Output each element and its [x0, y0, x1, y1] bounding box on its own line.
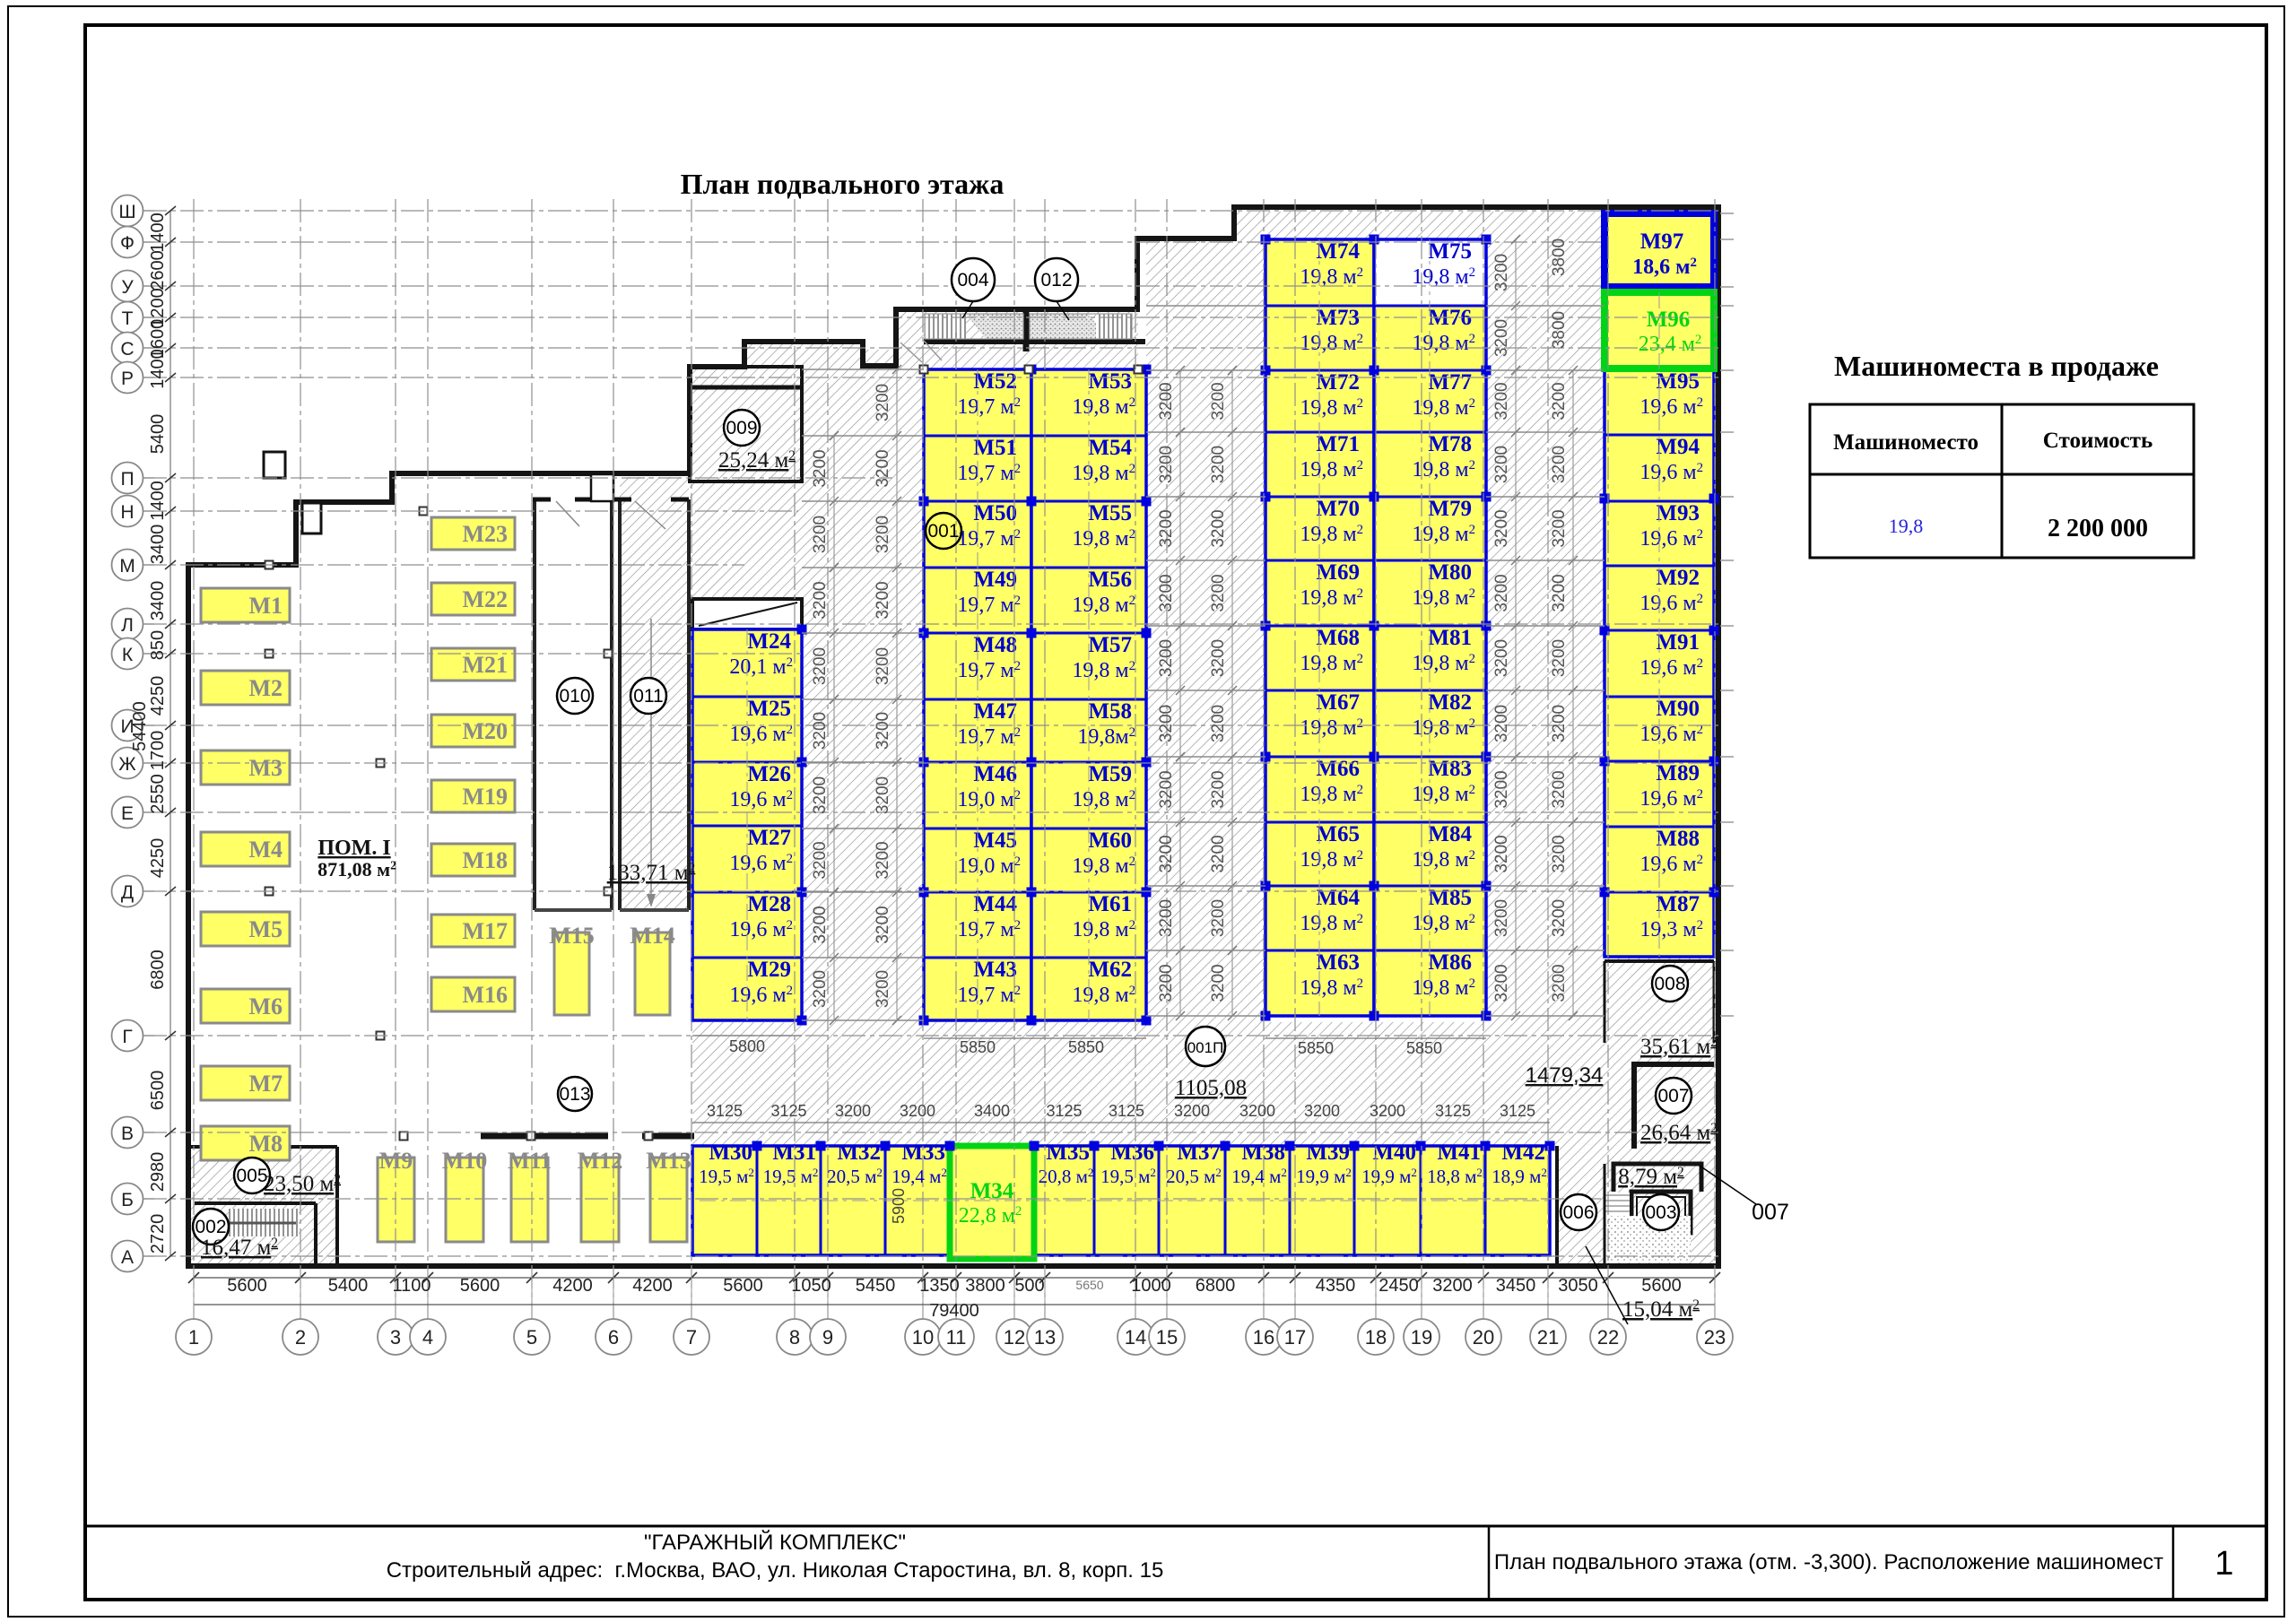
svg-text:19,9 м2: 19,9 м2 [1296, 1166, 1352, 1187]
svg-text:М94: М94 [1656, 435, 1700, 459]
svg-text:1000: 1000 [1131, 1276, 1171, 1296]
svg-text:3200: 3200 [1174, 1102, 1210, 1120]
svg-text:19,8 м2: 19,8 м2 [1072, 854, 1135, 878]
svg-text:3125: 3125 [1500, 1102, 1535, 1120]
svg-text:М64: М64 [1316, 886, 1360, 910]
svg-text:М97: М97 [1640, 230, 1684, 254]
svg-text:М62: М62 [1088, 958, 1132, 982]
svg-text:М48: М48 [973, 633, 1017, 657]
svg-text:М95: М95 [1656, 369, 1700, 394]
svg-text:19,4 м2: 19,4 м2 [1231, 1166, 1287, 1187]
svg-text:М90: М90 [1656, 697, 1700, 721]
svg-text:21: 21 [1537, 1326, 1559, 1349]
svg-text:19,8 м2: 19,8 м2 [1072, 984, 1135, 1007]
svg-text:14: 14 [1125, 1326, 1146, 1349]
svg-text:17: 17 [1284, 1326, 1306, 1349]
svg-text:23,50 м2: 23,50 м2 [264, 1172, 341, 1196]
svg-text:М36: М36 [1110, 1141, 1154, 1165]
svg-text:1050: 1050 [791, 1276, 831, 1296]
svg-text:М8: М8 [248, 1131, 283, 1157]
svg-text:19,0 м2: 19,0 м2 [957, 788, 1021, 811]
svg-text:3: 3 [390, 1326, 401, 1349]
svg-text:М29: М29 [747, 958, 791, 982]
svg-text:7: 7 [686, 1326, 697, 1349]
svg-text:20,5 м2: 20,5 м2 [827, 1166, 883, 1187]
svg-text:2600: 2600 [148, 250, 168, 291]
svg-text:133,71 м2: 133,71 м2 [607, 861, 696, 885]
svg-text:Ш: Ш [118, 202, 135, 222]
svg-text:3200: 3200 [811, 516, 830, 553]
svg-text:Н: Н [120, 502, 134, 523]
svg-text:3800: 3800 [965, 1276, 1005, 1296]
svg-text:5800: 5800 [729, 1037, 765, 1055]
svg-text:16: 16 [1253, 1326, 1274, 1349]
svg-text:3200: 3200 [1492, 964, 1511, 1002]
svg-text:М74: М74 [1316, 239, 1360, 264]
svg-text:М70: М70 [1316, 497, 1360, 521]
svg-text:19,3 м2: 19,3 м2 [1639, 918, 1703, 941]
svg-text:М84: М84 [1428, 822, 1472, 846]
svg-text:М58: М58 [1088, 699, 1132, 724]
svg-text:М25: М25 [747, 697, 791, 721]
svg-text:5850: 5850 [1406, 1039, 1442, 1057]
svg-text:3200: 3200 [874, 647, 892, 685]
svg-text:18,9 м2: 18,9 м2 [1492, 1166, 1547, 1187]
svg-text:19,6 м2: 19,6 м2 [729, 918, 793, 941]
svg-text:3200: 3200 [811, 906, 830, 943]
svg-text:М: М [119, 556, 135, 577]
svg-text:3200: 3200 [1157, 964, 1176, 1002]
svg-text:5600: 5600 [1641, 1276, 1682, 1296]
svg-text:1700: 1700 [148, 731, 168, 771]
svg-text:М87: М87 [1656, 892, 1700, 916]
svg-text:18: 18 [1365, 1326, 1387, 1349]
svg-text:М3: М3 [248, 755, 283, 781]
svg-text:М32: М32 [837, 1141, 881, 1165]
svg-text:М35: М35 [1046, 1141, 1090, 1165]
svg-text:3200: 3200 [1209, 639, 1228, 677]
svg-text:Б: Б [121, 1190, 134, 1210]
svg-text:19,5 м2: 19,5 м2 [699, 1166, 754, 1187]
svg-text:3200: 3200 [874, 516, 892, 553]
svg-text:5600: 5600 [227, 1276, 267, 1296]
svg-text:М50: М50 [973, 501, 1017, 525]
svg-text:3200: 3200 [1492, 835, 1511, 872]
svg-text:6500: 6500 [148, 1071, 168, 1111]
svg-text:М52: М52 [973, 369, 1017, 394]
svg-text:3200: 3200 [1492, 639, 1511, 677]
svg-text:Ф: Ф [120, 233, 135, 254]
svg-text:3200: 3200 [1209, 446, 1228, 483]
svg-text:23,4 м2: 23,4 м2 [1639, 333, 1702, 356]
svg-text:3200: 3200 [874, 776, 892, 814]
svg-text:3200: 3200 [1550, 835, 1569, 872]
svg-text:19: 19 [1411, 1326, 1432, 1349]
svg-text:М7: М7 [248, 1071, 283, 1097]
svg-text:М47: М47 [973, 699, 1017, 724]
svg-text:3200: 3200 [811, 581, 830, 619]
svg-text:5600: 5600 [723, 1276, 763, 1296]
svg-text:М46: М46 [973, 762, 1017, 786]
svg-text:М86: М86 [1428, 950, 1472, 975]
svg-text:2720: 2720 [148, 1214, 168, 1254]
svg-text:19,8 м2: 19,8 м2 [1072, 462, 1135, 485]
svg-text:"ГАРАЖНЫЙ КОМПЛЕКС": "ГАРАЖНЫЙ КОМПЛЕКС" [644, 1530, 906, 1555]
svg-text:23: 23 [1704, 1326, 1726, 1349]
svg-text:3200: 3200 [1492, 254, 1511, 291]
svg-text:3200: 3200 [1550, 446, 1569, 483]
svg-text:8: 8 [789, 1326, 800, 1349]
svg-text:3200: 3200 [1370, 1102, 1405, 1120]
svg-text:19,8 м2: 19,8 м2 [1300, 848, 1363, 872]
svg-text:3200: 3200 [1550, 574, 1569, 612]
svg-text:1: 1 [2214, 1545, 2233, 1583]
svg-text:19,8 м2: 19,8 м2 [1300, 652, 1363, 675]
svg-text:М44: М44 [973, 892, 1017, 916]
svg-text:26,64 м2: 26,64 м2 [1640, 1121, 1718, 1145]
svg-text:19,8 м2: 19,8 м2 [1300, 912, 1363, 935]
svg-text:19,6 м2: 19,6 м2 [729, 852, 793, 875]
svg-text:003: 003 [1645, 1202, 1676, 1223]
svg-text:007: 007 [1657, 1086, 1689, 1106]
svg-text:3200: 3200 [811, 449, 830, 487]
svg-text:3450: 3450 [1496, 1276, 1536, 1296]
svg-text:19,8 м2: 19,8 м2 [1072, 395, 1135, 419]
svg-text:4200: 4200 [632, 1276, 673, 1296]
svg-text:М4: М4 [248, 837, 283, 863]
svg-text:Машиноместо: Машиноместо [1833, 430, 1979, 455]
svg-text:19,6 м2: 19,6 м2 [729, 984, 793, 1007]
svg-text:М10: М10 [442, 1148, 488, 1174]
svg-text:871,08 м2: 871,08 м2 [317, 858, 396, 880]
svg-text:19,6 м2: 19,6 м2 [729, 723, 793, 746]
svg-text:3200: 3200 [811, 712, 830, 750]
svg-text:3200: 3200 [1550, 899, 1569, 937]
svg-text:3400: 3400 [974, 1102, 1010, 1120]
svg-text:3200: 3200 [811, 776, 830, 814]
svg-text:19,8 м2: 19,8 м2 [1300, 458, 1363, 481]
svg-text:Р: Р [121, 369, 134, 389]
svg-text:19,7 м2: 19,7 м2 [957, 395, 1021, 419]
svg-text:19,0 м2: 19,0 м2 [957, 854, 1021, 878]
svg-text:19,8: 19,8 [1889, 515, 1924, 537]
svg-text:35,61 м2: 35,61 м2 [1640, 1035, 1718, 1059]
svg-text:5400: 5400 [328, 1276, 369, 1296]
svg-text:19,7 м2: 19,7 м2 [957, 462, 1021, 485]
svg-text:1479,34: 1479,34 [1526, 1063, 1604, 1088]
svg-text:19,6 м2: 19,6 м2 [729, 788, 793, 811]
svg-text:009: 009 [726, 418, 757, 438]
svg-text:3200: 3200 [1157, 382, 1176, 420]
svg-text:М53: М53 [1088, 369, 1132, 394]
svg-text:19,7 м2: 19,7 м2 [957, 725, 1021, 749]
svg-text:М17: М17 [462, 918, 508, 944]
svg-text:М83: М83 [1428, 757, 1472, 781]
svg-text:3200: 3200 [1492, 509, 1511, 547]
svg-text:19,7 м2: 19,7 м2 [957, 918, 1021, 941]
svg-text:М65: М65 [1316, 822, 1360, 846]
svg-text:2: 2 [295, 1326, 306, 1349]
svg-text:16,47 м2: 16,47 м2 [201, 1236, 278, 1260]
svg-text:М63: М63 [1316, 950, 1360, 975]
svg-text:15,04 м2: 15,04 м2 [1622, 1297, 1700, 1322]
svg-text:5850: 5850 [1068, 1038, 1104, 1056]
svg-text:012: 012 [1040, 270, 1072, 291]
svg-text:19,6 м2: 19,6 м2 [1639, 592, 1703, 615]
svg-text:3200: 3200 [835, 1102, 871, 1120]
svg-text:001П: 001П [1187, 1039, 1224, 1056]
svg-text:М79: М79 [1428, 497, 1472, 521]
svg-text:М89: М89 [1656, 761, 1700, 785]
svg-text:М2: М2 [248, 675, 283, 701]
svg-text:79400: 79400 [929, 1301, 979, 1321]
svg-text:М28: М28 [747, 892, 791, 916]
svg-text:М51: М51 [973, 436, 1017, 460]
svg-text:002: 002 [195, 1217, 226, 1237]
svg-text:5400: 5400 [148, 414, 168, 455]
svg-text:19,8 м2: 19,8 м2 [1072, 659, 1135, 682]
svg-text:20,8 м2: 20,8 м2 [1039, 1166, 1094, 1187]
svg-text:М12: М12 [578, 1148, 623, 1174]
svg-text:013: 013 [559, 1084, 590, 1105]
svg-text:Л: Л [121, 615, 134, 636]
svg-text:19,7 м2: 19,7 м2 [957, 594, 1021, 617]
svg-text:М68: М68 [1316, 626, 1360, 650]
svg-text:3200: 3200 [1239, 1102, 1275, 1120]
svg-text:19,8 м2: 19,8 м2 [1072, 594, 1135, 617]
svg-text:6800: 6800 [1196, 1276, 1236, 1296]
svg-text:3200: 3200 [1209, 835, 1228, 872]
svg-text:11: 11 [946, 1326, 967, 1349]
svg-text:М16: М16 [462, 982, 508, 1008]
svg-text:4250: 4250 [148, 676, 168, 716]
svg-text:3200: 3200 [1550, 382, 1569, 420]
svg-text:2980: 2980 [148, 1152, 168, 1193]
svg-text:5600: 5600 [460, 1276, 500, 1296]
svg-text:3200: 3200 [1209, 899, 1228, 937]
svg-text:М37: М37 [1177, 1141, 1221, 1165]
svg-text:М85: М85 [1428, 886, 1472, 910]
svg-text:1400: 1400 [148, 213, 168, 253]
svg-text:М80: М80 [1428, 560, 1472, 585]
svg-text:3200: 3200 [1550, 770, 1569, 808]
svg-text:4: 4 [422, 1326, 433, 1349]
svg-text:1400: 1400 [148, 349, 168, 389]
svg-text:3200: 3200 [811, 647, 830, 685]
svg-text:3200: 3200 [1209, 574, 1228, 612]
svg-text:19,8 м2: 19,8 м2 [1072, 918, 1135, 941]
svg-text:М1: М1 [248, 593, 283, 619]
svg-text:22: 22 [1597, 1326, 1619, 1349]
svg-text:М59: М59 [1088, 762, 1132, 786]
svg-text:М24: М24 [747, 629, 791, 654]
svg-text:3200: 3200 [1550, 509, 1569, 547]
svg-text:2450: 2450 [1378, 1276, 1419, 1296]
svg-text:3400: 3400 [148, 525, 168, 565]
svg-text:М19: М19 [462, 784, 508, 810]
svg-text:М23: М23 [462, 521, 508, 547]
svg-text:3200: 3200 [874, 449, 892, 487]
svg-text:1350: 1350 [919, 1276, 960, 1296]
svg-text:М66: М66 [1316, 757, 1360, 781]
svg-text:18,6 м2: 18,6 м2 [1632, 256, 1697, 279]
svg-text:3200: 3200 [1209, 705, 1228, 742]
svg-text:Г: Г [122, 1027, 132, 1047]
svg-text:3200: 3200 [1550, 639, 1569, 677]
svg-text:3200: 3200 [1157, 835, 1176, 872]
svg-text:М71: М71 [1316, 432, 1360, 456]
svg-text:1400: 1400 [148, 481, 168, 521]
svg-text:19,6 м2: 19,6 м2 [1639, 527, 1703, 551]
svg-text:19,8 м2: 19,8 м2 [1300, 332, 1363, 355]
svg-text:850: 850 [148, 630, 168, 660]
svg-text:М18: М18 [462, 847, 508, 873]
svg-text:19,7 м2: 19,7 м2 [957, 659, 1021, 682]
svg-text:5450: 5450 [856, 1276, 896, 1296]
svg-text:18,8 м2: 18,8 м2 [1427, 1166, 1483, 1187]
svg-text:Строительный адрес: г.Москва,: Строительный адрес: г.Москва, ВАО, ул. Н… [387, 1558, 1164, 1583]
svg-text:3200: 3200 [811, 970, 830, 1008]
svg-text:М20: М20 [462, 718, 508, 744]
svg-text:М30: М30 [709, 1141, 752, 1165]
svg-text:Стоимость: Стоимость [2043, 429, 2152, 453]
svg-text:3200: 3200 [1157, 446, 1176, 483]
svg-text:М61: М61 [1088, 892, 1132, 916]
svg-text:19,8 м2: 19,8 м2 [1300, 716, 1363, 740]
svg-text:М43: М43 [973, 958, 1017, 982]
svg-text:5850: 5850 [1298, 1039, 1334, 1057]
svg-text:5900: 5900 [890, 1188, 908, 1224]
svg-text:19,8 м2: 19,8 м2 [1300, 523, 1363, 546]
svg-text:19,5 м2: 19,5 м2 [1100, 1166, 1156, 1187]
svg-text:3200: 3200 [900, 1102, 935, 1120]
svg-text:3200: 3200 [1157, 639, 1176, 677]
svg-text:В: В [121, 1123, 134, 1144]
svg-text:19,6 м2: 19,6 м2 [1639, 723, 1703, 746]
svg-text:М27: М27 [747, 826, 791, 850]
svg-text:3050: 3050 [1558, 1276, 1598, 1296]
svg-text:19,7 м2: 19,7 м2 [957, 984, 1021, 1007]
svg-text:5650: 5650 [1075, 1278, 1103, 1292]
svg-text:М57: М57 [1088, 633, 1132, 657]
svg-text:3200: 3200 [1157, 705, 1176, 742]
svg-text:М56: М56 [1088, 568, 1132, 592]
svg-text:1100: 1100 [392, 1276, 430, 1296]
svg-text:19,5 м2: 19,5 м2 [763, 1166, 819, 1187]
svg-text:3125: 3125 [707, 1102, 743, 1120]
svg-text:3200: 3200 [1492, 382, 1511, 420]
svg-text:500: 500 [1014, 1276, 1044, 1296]
svg-text:3200: 3200 [1157, 899, 1176, 937]
svg-text:М5: М5 [248, 916, 283, 942]
svg-text:М88: М88 [1656, 827, 1700, 851]
svg-text:М6: М6 [248, 993, 283, 1019]
svg-text:М39: М39 [1306, 1141, 1350, 1165]
svg-text:007: 007 [1752, 1200, 1789, 1225]
svg-text:М40: М40 [1372, 1141, 1416, 1165]
svg-text:3200: 3200 [1492, 574, 1511, 612]
svg-text:3200: 3200 [874, 841, 892, 879]
svg-text:3200: 3200 [874, 384, 892, 421]
svg-text:22,8 м2: 22,8 м2 [959, 1204, 1022, 1227]
svg-text:М69: М69 [1316, 560, 1360, 585]
svg-text:М11: М11 [508, 1148, 552, 1174]
svg-text:М91: М91 [1656, 630, 1700, 655]
svg-text:20,1 м2: 20,1 м2 [729, 655, 793, 679]
svg-text:План подвального этажа: План подвального этажа [681, 168, 1004, 200]
svg-text:План подвального этажа (отм. -: План подвального этажа (отм. -3,300). Ра… [1494, 1550, 2163, 1574]
svg-text:1: 1 [188, 1326, 199, 1349]
svg-text:3125: 3125 [1046, 1102, 1082, 1120]
svg-text:19,6 м2: 19,6 м2 [1639, 787, 1703, 811]
svg-text:Ж: Ж [118, 754, 136, 775]
svg-text:М67: М67 [1316, 690, 1360, 715]
svg-text:3200: 3200 [1157, 770, 1176, 808]
svg-text:М54: М54 [1088, 436, 1132, 460]
svg-text:8,79 м2: 8,79 м2 [1618, 1165, 1684, 1189]
svg-text:19,8 м2: 19,8 м2 [1072, 788, 1135, 811]
svg-text:3200: 3200 [1209, 382, 1228, 420]
svg-text:3200: 3200 [1550, 705, 1569, 742]
svg-text:М60: М60 [1088, 828, 1132, 853]
svg-text:3200: 3200 [874, 581, 892, 619]
svg-text:011: 011 [633, 686, 663, 707]
svg-text:008: 008 [1654, 974, 1685, 994]
svg-text:19,8 м2: 19,8 м2 [1300, 783, 1363, 806]
svg-text:19,6 м2: 19,6 м2 [1639, 656, 1703, 680]
svg-text:У: У [121, 277, 134, 298]
svg-text:19,9 м2: 19,9 м2 [1361, 1166, 1417, 1187]
svg-text:М77: М77 [1428, 370, 1472, 395]
svg-text:19,8 м2: 19,8 м2 [1300, 396, 1363, 420]
svg-text:М26: М26 [747, 762, 791, 786]
svg-text:3200: 3200 [1304, 1102, 1340, 1120]
svg-text:3800: 3800 [1550, 311, 1569, 349]
svg-text:25,24 м2: 25,24 м2 [718, 448, 796, 473]
svg-text:004: 004 [957, 270, 988, 291]
svg-text:С: С [120, 339, 134, 360]
svg-text:3200: 3200 [1209, 509, 1228, 547]
svg-text:19,6 м2: 19,6 м2 [1639, 395, 1703, 419]
svg-text:3200: 3200 [874, 970, 892, 1008]
svg-text:5: 5 [526, 1326, 537, 1349]
svg-text:М96: М96 [1647, 308, 1691, 332]
svg-text:4250: 4250 [148, 838, 168, 879]
svg-text:3200: 3200 [1492, 899, 1511, 937]
svg-text:3400: 3400 [148, 581, 168, 621]
svg-text:М81: М81 [1428, 626, 1472, 650]
svg-text:4350: 4350 [1316, 1276, 1356, 1296]
svg-text:19,8 м2: 19,8 м2 [1300, 586, 1363, 610]
svg-text:М14: М14 [630, 923, 675, 949]
svg-text:12: 12 [1004, 1326, 1025, 1349]
svg-text:19,8м2: 19,8м2 [1077, 725, 1135, 749]
svg-text:М72: М72 [1316, 370, 1360, 395]
svg-text:6: 6 [608, 1326, 619, 1349]
svg-text:20: 20 [1473, 1326, 1494, 1349]
svg-text:13: 13 [1034, 1326, 1056, 1349]
svg-text:19,7 м2: 19,7 м2 [957, 527, 1021, 551]
svg-text:010: 010 [559, 686, 590, 707]
svg-text:4200: 4200 [552, 1276, 593, 1296]
svg-text:5850: 5850 [960, 1038, 996, 1056]
svg-text:М93: М93 [1656, 501, 1700, 525]
svg-text:9: 9 [822, 1326, 833, 1349]
svg-text:К: К [122, 645, 134, 665]
svg-text:19,6 м2: 19,6 м2 [1639, 853, 1703, 876]
svg-text:М92: М92 [1656, 566, 1700, 590]
svg-text:М49: М49 [973, 568, 1017, 592]
